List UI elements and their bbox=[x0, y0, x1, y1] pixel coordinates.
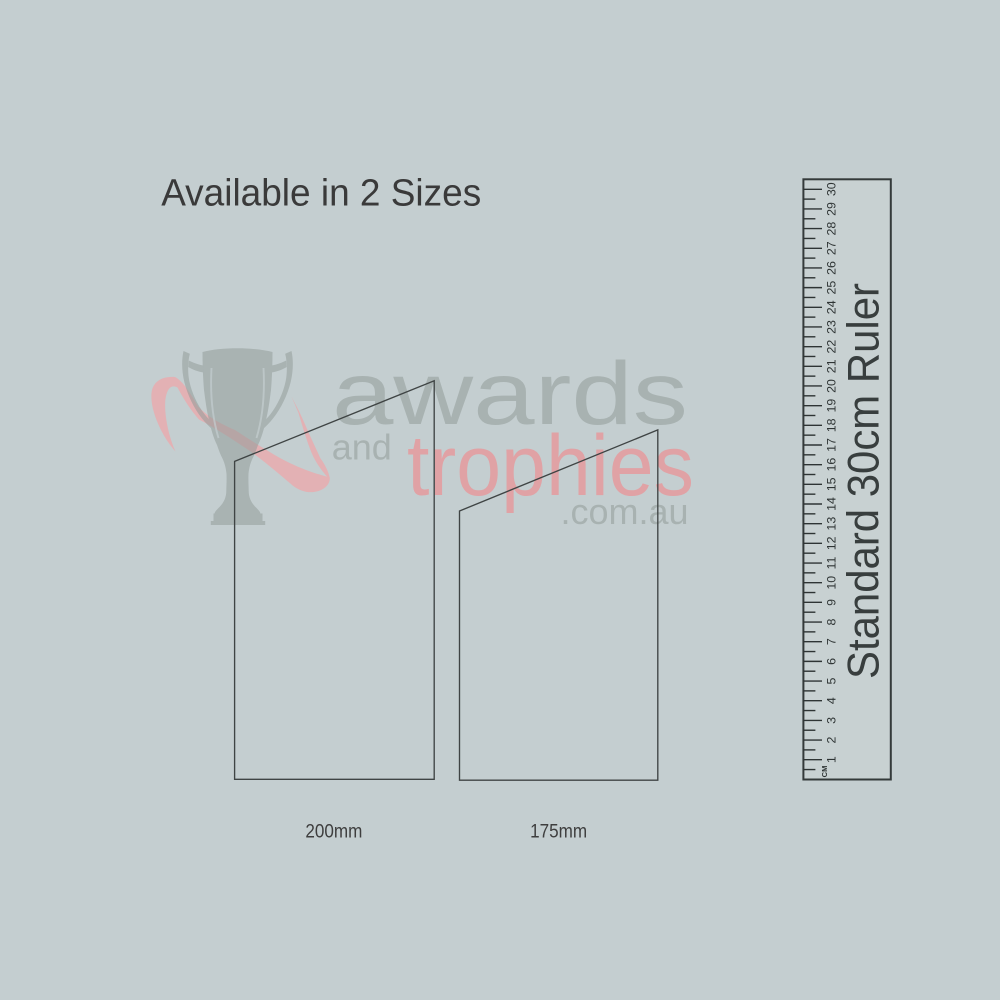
svg-text:7: 7 bbox=[825, 638, 839, 645]
svg-text:22: 22 bbox=[825, 340, 839, 354]
svg-text:Standard 30cm Ruler: Standard 30cm Ruler bbox=[840, 283, 889, 679]
svg-text:26: 26 bbox=[825, 261, 839, 275]
svg-text:15: 15 bbox=[825, 477, 839, 491]
svg-text:and: and bbox=[332, 427, 392, 468]
svg-text:Available in 2 Sizes: Available in 2 Sizes bbox=[161, 173, 481, 215]
svg-text:12: 12 bbox=[825, 536, 839, 550]
svg-text:18: 18 bbox=[825, 418, 839, 432]
svg-text:13: 13 bbox=[825, 517, 839, 531]
svg-text:20: 20 bbox=[825, 379, 839, 393]
svg-text:17: 17 bbox=[825, 438, 839, 452]
svg-text:2: 2 bbox=[825, 737, 839, 744]
svg-text:6: 6 bbox=[825, 658, 839, 665]
svg-text:.com.au: .com.au bbox=[561, 491, 689, 532]
svg-text:1: 1 bbox=[825, 756, 839, 763]
svg-text:5: 5 bbox=[825, 677, 839, 684]
svg-text:19: 19 bbox=[825, 399, 839, 413]
svg-text:27: 27 bbox=[825, 241, 839, 255]
svg-text:4: 4 bbox=[825, 697, 839, 704]
svg-text:175mm: 175mm bbox=[530, 822, 587, 843]
svg-text:8: 8 bbox=[825, 618, 839, 625]
svg-text:11: 11 bbox=[825, 556, 839, 569]
svg-text:9: 9 bbox=[825, 599, 839, 606]
svg-text:14: 14 bbox=[825, 497, 839, 511]
svg-text:CM: CM bbox=[820, 766, 829, 778]
svg-text:16: 16 bbox=[825, 458, 839, 472]
svg-text:23: 23 bbox=[825, 320, 839, 334]
svg-text:200mm: 200mm bbox=[305, 822, 362, 843]
svg-text:28: 28 bbox=[825, 222, 839, 236]
svg-text:10: 10 bbox=[825, 576, 839, 590]
svg-text:21: 21 bbox=[825, 359, 839, 373]
svg-text:3: 3 bbox=[825, 717, 839, 724]
svg-text:30: 30 bbox=[825, 182, 839, 196]
svg-text:29: 29 bbox=[825, 202, 839, 216]
svg-text:24: 24 bbox=[825, 300, 839, 314]
svg-text:25: 25 bbox=[825, 281, 839, 295]
